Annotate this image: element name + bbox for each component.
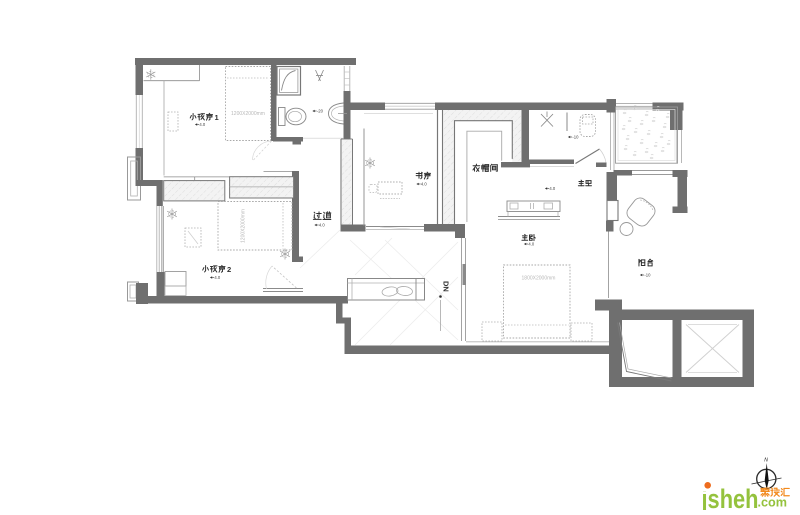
svg-text:-20: -20 (317, 108, 324, 113)
svg-text:-10: -10 (572, 134, 579, 139)
svg-text:4.0: 4.0 (214, 275, 220, 280)
svg-text:4.0: 4.0 (319, 222, 325, 227)
svg-text:4.0: 4.0 (421, 181, 427, 186)
svg-text:1200X2000mm: 1200X2000mm (241, 209, 247, 243)
svg-text:2: 2 (227, 265, 231, 274)
svg-text:N: N (764, 458, 768, 464)
svg-text:1200X2000mm: 1200X2000mm (231, 111, 265, 117)
svg-text:4.0: 4.0 (528, 241, 534, 246)
svg-text:4.0: 4.0 (199, 122, 205, 127)
svg-text:DN: DN (442, 281, 451, 292)
svg-text:1800X2000mm: 1800X2000mm (522, 276, 556, 282)
svg-text:-10: -10 (644, 272, 651, 277)
svg-text:.com: .com (758, 495, 788, 510)
svg-text:4.0: 4.0 (549, 186, 555, 191)
